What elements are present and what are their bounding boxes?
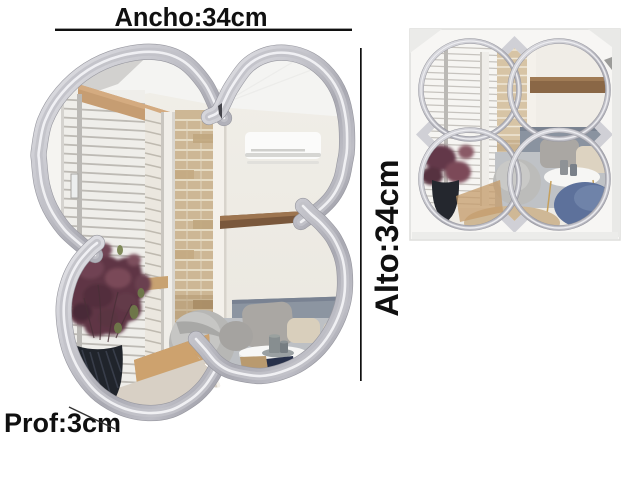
svg-text:Ancho:34cm: Ancho:34cm <box>114 4 267 32</box>
svg-text:Alto:34cm: Alto:34cm <box>369 159 405 316</box>
